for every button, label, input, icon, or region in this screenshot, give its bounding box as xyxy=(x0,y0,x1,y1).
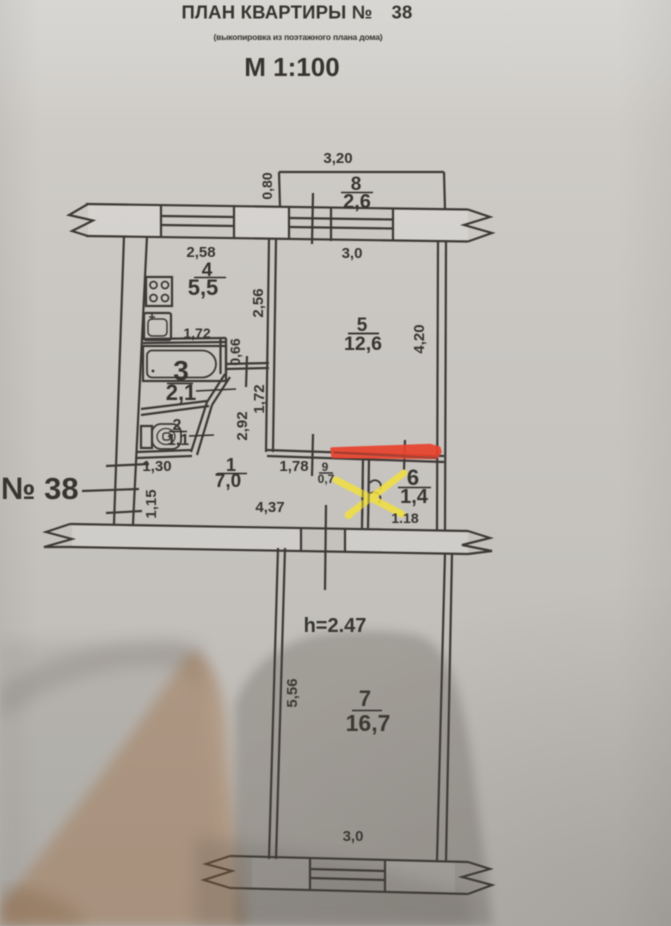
svg-text:0,66: 0,66 xyxy=(227,338,243,365)
svg-text:0,80: 0,80 xyxy=(259,172,275,199)
svg-text:2,1: 2,1 xyxy=(166,380,197,405)
svg-text:№ 38: № 38 xyxy=(1,471,79,506)
svg-text:ПЛАН КВАРТИРЫ № 38: ПЛАН КВАРТИРЫ № 38 xyxy=(181,2,412,23)
svg-text:2,6: 2,6 xyxy=(343,191,371,213)
svg-text:М 1:100: М 1:100 xyxy=(244,52,339,82)
svg-text:1,30: 1,30 xyxy=(142,458,171,475)
svg-text:3,0: 3,0 xyxy=(342,245,363,262)
svg-text:3,20: 3,20 xyxy=(323,150,352,167)
svg-text:1,72: 1,72 xyxy=(251,384,268,413)
svg-text:1.18: 1.18 xyxy=(391,510,418,526)
svg-text:5,5: 5,5 xyxy=(188,275,219,300)
svg-text:4,20: 4,20 xyxy=(411,324,428,353)
svg-text:4,37: 4,37 xyxy=(255,499,284,516)
svg-text:(выкопировка из поэтажного пла: (выкопировка из поэтажного плана дома) xyxy=(214,32,383,42)
svg-text:2,56: 2,56 xyxy=(250,288,267,317)
svg-text:0,7: 0,7 xyxy=(318,472,335,486)
svg-text:2,58: 2,58 xyxy=(186,244,215,261)
svg-text:2,92: 2,92 xyxy=(234,411,251,440)
svg-text:1,72: 1,72 xyxy=(183,325,210,341)
svg-text:7,0: 7,0 xyxy=(215,471,241,492)
svg-text:1,15: 1,15 xyxy=(143,489,160,518)
svg-text:1,1: 1,1 xyxy=(167,432,189,449)
svg-text:1,4: 1,4 xyxy=(400,486,429,508)
svg-text:12,6: 12,6 xyxy=(344,333,382,355)
svg-text:1,78: 1,78 xyxy=(279,458,308,475)
